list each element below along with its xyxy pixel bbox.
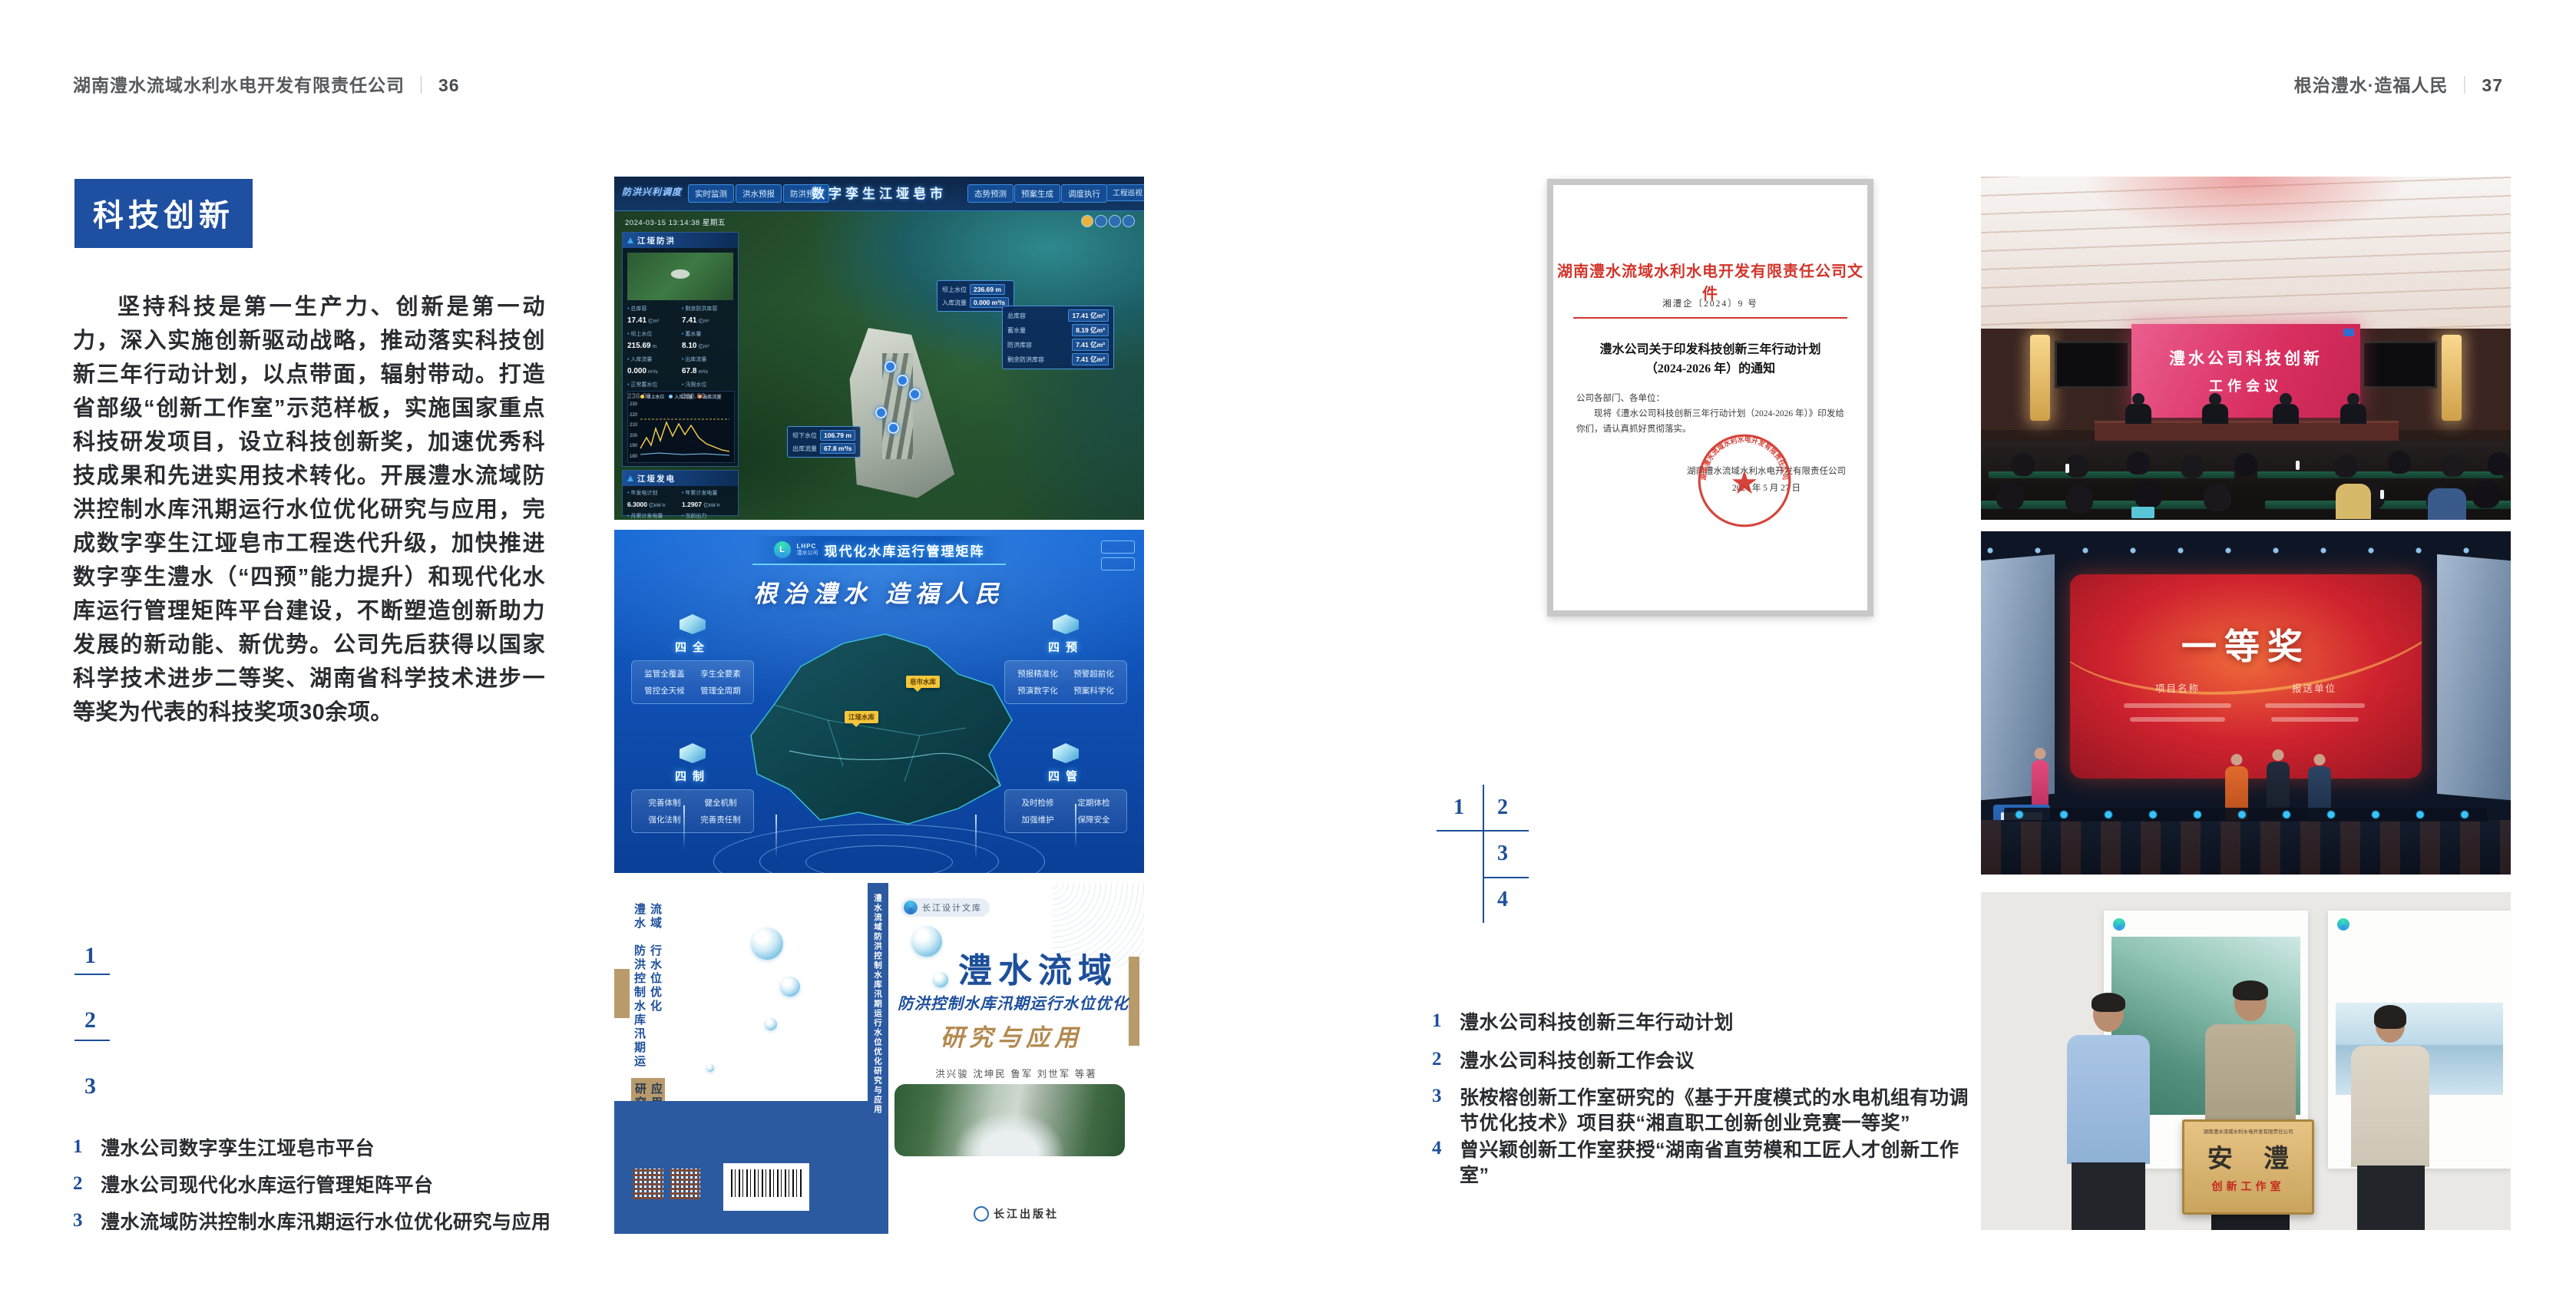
chart-plot: [628, 392, 734, 462]
gate-marker: [885, 361, 896, 372]
caption-text: 澧水公司科技创新三年行动计划: [1460, 1010, 1734, 1036]
section-title-badge: 科技创新: [74, 179, 253, 248]
qr-code: [670, 1169, 700, 1199]
company-seal: 湖南澧水流域水利水电开发有限责任公司 ★: [1696, 432, 1793, 529]
person-blue-polo: [2067, 1035, 2150, 1164]
red-rule: [1573, 317, 1847, 319]
figure-index-left-2: 2: [84, 1007, 96, 1033]
book-back-cover: 澧水流域 防洪控制水库汛期运行水位优化 研究与应用: [614, 883, 868, 1234]
panel-items: 监管全覆盖孪生全要素 管控全天候管理全周期: [631, 660, 754, 704]
cube-icon: [1053, 743, 1079, 763]
water-bottle: [2296, 461, 2300, 470]
locate-icon: [1109, 215, 1121, 227]
person-trousers: [2072, 1162, 2145, 1230]
light-pillar: [1075, 804, 1076, 848]
book-title-tail: 研究与应用: [941, 1018, 1083, 1053]
matrix-header: L LHPC 澧水公司 现代化水库运行管理矩阵: [752, 536, 1006, 565]
water-bubble: [911, 926, 942, 957]
cube-icon: [680, 614, 706, 634]
audience-member-yellow: [2336, 484, 2371, 519]
wall-display: [2055, 341, 2130, 388]
document-number: 湘澧企〔2024〕9 号: [1553, 297, 1867, 309]
screen-text-bar: [2271, 717, 2359, 722]
capacity-info-panel: 总库容17.41 亿m³ 蓄水量8.19 亿m³ 防洪库容7.41 亿m³ 剩余…: [1002, 306, 1114, 369]
flood-panel-title: 江垭防洪: [623, 233, 738, 248]
figure-official-document: 湖南澧水流域水利水电开发有限责任公司文件 湘澧企〔2024〕9 号 澧水公司关于…: [1547, 179, 1873, 617]
caption-left-1: 1 澧水公司数字孪生江垭皂市平台: [73, 1136, 580, 1162]
caption-left-3: 3 澧水流域防洪控制水库汛期运行水位优化研究与应用: [73, 1210, 580, 1235]
downstream-level-tag: 坝下水位106.79 m 出库流量67.8 m³/s: [787, 426, 861, 458]
caption-text: 澧水公司科技创新工作会议: [1460, 1049, 1695, 1074]
audience-member-blue: [2428, 488, 2466, 520]
water-bubble: [706, 1064, 714, 1072]
series-badge: 长江设计文库: [901, 898, 990, 917]
close-button-shape: [1101, 541, 1135, 554]
halo-ring: [805, 845, 953, 873]
screen-column-project: 项目名称: [2116, 680, 2239, 695]
tag-row: 出库流量67.8 m³/s: [792, 443, 855, 454]
screen-text-bar: [2265, 703, 2365, 708]
figure-index-hline: [1437, 830, 1529, 832]
salutation: 公司各部门、各单位：: [1576, 391, 1844, 406]
legend-button-shape: [1101, 557, 1135, 570]
screen-line-1: 澧水公司科技创新: [2169, 346, 2323, 369]
desk-row-green: [2265, 501, 2511, 509]
screen-text-bar: [2124, 703, 2231, 708]
reservoir-tag-jiangya: 江垭水库: [845, 711, 878, 723]
person-head: [2234, 984, 2267, 1021]
dam-illustration: [848, 328, 964, 498]
dashboard-datetime: 2024-03-15 13:14:38 星期五: [625, 217, 726, 227]
basin-map: 皂市水库 江垭水库: [728, 613, 1027, 843]
panel-siguan: 四管 及时检修定期体检 加强维护保障安全: [1004, 743, 1127, 833]
stage-light-fixtures: [2004, 808, 2488, 822]
led-screen: 一等奖 项目名称 报送单位: [2070, 574, 2422, 779]
tab-project-inspection: 工程巡视: [1106, 184, 1144, 201]
person-head: [2093, 997, 2124, 1032]
screen-text-bar: [2130, 717, 2225, 722]
header-separator: ｜: [412, 75, 431, 95]
info-row: 总库容17.41 亿m³: [1007, 309, 1109, 322]
book-spine: 澧水流域防洪控制水库汛期运行水位优化研究与应用: [868, 883, 888, 1234]
dam-thumbnail: [627, 253, 733, 300]
caption-number: 4: [1432, 1138, 1460, 1159]
speaker-silhouette: [2202, 404, 2228, 424]
book-title-sub: 防洪控制水库汛期运行水位优化: [898, 990, 1129, 1013]
caption-number: 2: [73, 1173, 101, 1195]
seal-star-icon: ★: [1730, 466, 1759, 501]
figure-innovation-meeting-photo: 澧水公司科技创新 工作会议: [1981, 177, 2511, 520]
light-pillar: [775, 815, 777, 859]
tissue-box: [2131, 507, 2154, 518]
caption-right-4: 4 曾兴颖创新工作室获授“湖南省直劳模和工匠人才创新工作室”: [1432, 1138, 1974, 1189]
magazine-spread: 湖南澧水流域水利水电开发有限责任公司｜36 根治澧水·造福人民｜37 科技创新 …: [0, 0, 2576, 1306]
gate-marker: [897, 375, 908, 386]
qr-code: [633, 1169, 663, 1199]
figure-index-hline-short: [1483, 877, 1529, 878]
figure-index-right-3: 3: [1497, 841, 1508, 866]
right-page-header: 根治澧水·造福人民｜37: [2294, 71, 2503, 97]
logo-text: LHPC 澧水公司: [797, 543, 818, 557]
matrix-slogan-calligraphy: 根治澧水 造福人民: [614, 574, 1144, 609]
legend-item: 出库流量: [698, 393, 722, 400]
info-row: 蓄水量8.19 亿m³: [1007, 324, 1109, 336]
gate-marker: [875, 407, 887, 418]
panel-items: 完善体制健全机制 强化法制完善责任制: [631, 789, 754, 833]
legend-item: 坝上水位: [640, 393, 664, 400]
left-page-header: 湖南澧水流域水利水电开发有限责任公司｜36: [73, 71, 460, 97]
panel-title: 四管: [1004, 768, 1127, 784]
stat: 坝上水位215.69m: [627, 330, 679, 352]
series-logo-icon: [904, 901, 918, 914]
meeting-ceiling: [1981, 177, 2511, 329]
layers-icon: [1095, 215, 1107, 227]
figure-index-right-4: 4: [1497, 888, 1508, 912]
reservoir-tag-zaoshi: 皂市水库: [906, 676, 940, 688]
panel-siquan: 四全 监管全覆盖孪生全要素 管控全天候管理全周期: [631, 614, 754, 704]
publisher-logo-icon: [974, 1206, 989, 1222]
info-row: 防洪库容7.41 亿m³: [1007, 339, 1109, 351]
caption-left-2: 2 澧水公司现代化水库运行管理矩阵平台: [73, 1173, 580, 1199]
figure-index-divider: [74, 974, 110, 975]
matrix-title: 现代化水库运行管理矩阵: [825, 541, 985, 560]
cube-icon: [680, 743, 706, 763]
audience-silhouettes-row: [2012, 453, 2035, 476]
page-number-left: 36: [438, 75, 460, 95]
figure-book-cover: 澧水流域 防洪控制水库汛期运行水位优化 研究与应用 澧水流域防洪控制水库汛期运行…: [614, 883, 1144, 1234]
dam-photo: [894, 1084, 1125, 1156]
speaker-silhouette: [2125, 404, 2151, 424]
caption-text: 澧水公司现代化水库运行管理矩阵平台: [101, 1173, 434, 1199]
tag-row: 坝上水位236.69 m: [942, 284, 1009, 295]
audience-silhouettes-row: [1996, 482, 2024, 510]
cube-icon: [1053, 614, 1079, 634]
meeting-screen: 澧水公司科技创新 工作会议: [2131, 324, 2360, 418]
panel-title: 四制: [631, 768, 754, 784]
info-row: 剩余防洪库容7.41 亿m³: [1007, 353, 1109, 365]
water-bubble: [751, 927, 783, 960]
figure-index-right-1: 1: [1453, 795, 1464, 820]
section-body-paragraph: 坚持科技是第一生产力、创新是第一动力，深入实施创新驱动战略，推动落实科技创新三年…: [73, 290, 545, 729]
tab-dispatch-execution: 调度执行: [1061, 184, 1107, 203]
caption-text: 张桉榕创新工作室研究的《基于开度模式的水电机组有功调节优化技术》项目获“湘直职工…: [1460, 1086, 1974, 1136]
publisher-name: 长江出版社: [994, 1206, 1059, 1222]
power-stats: 年发电计划6.3000亿kW·h 年累计发电量1.2907亿kW·h 月累计发电…: [627, 489, 733, 520]
panel-items: 预报精准化预警超前化 预演数字化预案科学化: [1004, 660, 1127, 704]
speaker-silhouette: [2340, 404, 2366, 424]
innovation-workshop-plaque: 湖南澧水流域水利水电开发有限责任公司 安 澧 创新工作室: [2182, 1119, 2314, 1215]
legend-item: 入库流量: [669, 393, 693, 400]
water-bubble: [780, 977, 800, 997]
stat: 入库流量0.000m³/s: [627, 355, 679, 377]
light-pillar: [683, 805, 685, 850]
chart-legend: 坝上水位 入库流量 出库流量: [628, 393, 734, 400]
book-front-cover: 长江设计文库 澧水流域 防洪控制水库汛期运行水位优化 研究与应用 洪兴骏 沈坤民…: [888, 883, 1144, 1234]
panel-title: 四全: [631, 639, 754, 655]
tab-plan-generation: 预案生成: [1014, 184, 1060, 203]
poster-logo-icon: [2113, 918, 2125, 931]
caption-number: 3: [1432, 1086, 1460, 1107]
user-icon: [1081, 215, 1093, 227]
panel-title: 四预: [1004, 639, 1127, 655]
stat: 当前出力0.00MW: [682, 512, 733, 520]
plaque-main-title: 安 澧: [2184, 1138, 2312, 1175]
book-title-main: 澧水流域: [958, 943, 1118, 992]
speaker-silhouette: [2273, 404, 2299, 424]
settings-icon: [1123, 215, 1135, 227]
document-page: 湖南澧水流域水利水电开发有限责任公司文件 湘澧企〔2024〕9 号 澧水公司关于…: [1553, 185, 1867, 610]
gate-marker: [888, 422, 899, 434]
flood-stats: 总库容17.41亿m³ 剩余防洪库容7.41亿m³ 坝上水位215.69m 蓄水…: [627, 305, 733, 402]
wall-light: [2030, 335, 2050, 421]
dashboard-title: 数字孪生江垭皂市: [787, 178, 971, 206]
caption-number: 1: [1432, 1010, 1460, 1032]
caption-right-1: 1 澧水公司科技创新三年行动计划: [1432, 1010, 1974, 1036]
back-cover-vertical-title: 澧水流域 防洪控制水库汛期运行水位优化 研究与应用: [631, 903, 665, 1133]
person-trousers: [2357, 1165, 2425, 1230]
person-beige-top: [2351, 1046, 2429, 1167]
poster-logo-icon: [2337, 918, 2349, 931]
panel-items: 及时检修定期体检 加强维护保障安全: [1004, 789, 1127, 833]
plaque-header: 湖南澧水流域水利水电开发有限责任公司: [2184, 1127, 2312, 1135]
caption-number: 2: [1432, 1049, 1460, 1070]
stat: 剩余防洪库容7.41亿m³: [682, 305, 733, 326]
wall-display: [2362, 341, 2437, 388]
lhpc-logo-icon: L: [774, 541, 791, 558]
tan-accent-block: [614, 969, 630, 1018]
stat: 蓄水量8.10亿m³: [682, 330, 733, 352]
wall-light: [2442, 335, 2462, 421]
stage-truss-lights: [1981, 537, 2511, 564]
water-bottle: [2380, 490, 2384, 499]
gate-marker: [909, 388, 921, 400]
screen-logo-icon: [2343, 329, 2354, 336]
tab-realtime-monitor: 实时监测: [688, 184, 734, 203]
tab-flood-forecast: 洪水预报: [736, 184, 782, 203]
stat: 总库容17.41亿m³: [627, 305, 679, 326]
figure-workshop-plaque-photo: 湖南澧水流域水利水电开发有限责任公司 安 澧 创新工作室: [1981, 892, 2511, 1230]
stat: 年累计发电量1.2907亿kW·h: [682, 489, 733, 511]
caption-text: 曾兴颖创新工作室获授“湖南省直劳模和工匠人才创新工作室”: [1460, 1138, 1974, 1189]
book-authors: 洪兴骏 沈坤民 鲁军 刘世军 等著: [888, 1066, 1144, 1080]
screen-line-2: 工作会议: [2209, 375, 2283, 395]
water-level-chart: 坝上水位 入库流量 出库流量 230220210200190180: [627, 391, 735, 463]
caption-number: 1: [73, 1136, 101, 1158]
caption-number: 3: [73, 1210, 101, 1232]
tab-situation-forecast: 态势预测: [967, 184, 1014, 203]
stage-side-panel: [2437, 554, 2511, 800]
figure-index-left-3: 3: [84, 1073, 96, 1099]
flood-panel: 江垭防洪 总库容17.41亿m³ 剩余防洪库容7.41亿m³ 坝上水位215.6…: [622, 232, 739, 467]
figure-digital-twin-dashboard: 防洪兴利调度 实时监测 洪水预报 防洪预警 数字孪生江垭皂市 态势预测 预案生成…: [614, 177, 1144, 520]
chart-y-ticks: 230220210200190180: [630, 402, 637, 459]
caption-text: 澧水流域防洪控制水库汛期运行水位优化研究与应用: [101, 1210, 551, 1235]
figure-index-divider: [74, 1040, 110, 1041]
slogan: 根治澧水·造福人民: [2294, 75, 2449, 95]
page-number-right: 37: [2482, 75, 2503, 95]
water-bubble: [765, 1018, 777, 1030]
water-bubble: [933, 972, 948, 987]
caption-text: 澧水公司数字孪生江垭皂市平台: [101, 1136, 375, 1162]
figure-index-right-2: 2: [1497, 795, 1508, 820]
document-title: 澧水公司关于印发科技创新三年行动计划 （2024-2026 年）的通知: [1553, 340, 1867, 379]
screen-column-unit: 报送单位: [2253, 680, 2376, 695]
light-pillar: [975, 815, 977, 859]
header-separator: ｜: [2455, 75, 2474, 95]
audience-area: [1981, 441, 2511, 520]
figure-award-ceremony-photo: 一等奖 项目名称 报送单位: [1981, 531, 2511, 875]
stage-floor: [1981, 820, 2511, 875]
figure-reservoir-matrix-platform: L LHPC 澧水公司 现代化水库运行管理矩阵 根治澧水 造福人民 皂市水库: [614, 530, 1144, 873]
panel-sizhi: 四制 完善体制健全机制 强化法制完善责任制: [631, 743, 754, 833]
water-bottle: [2065, 464, 2069, 473]
panel-siyu: 四预 预报精准化预警超前化 预演数字化预案科学化: [1004, 614, 1127, 704]
series-name: 长江设计文库: [922, 901, 982, 914]
desk-row-green: [2257, 471, 2503, 478]
document-body: 公司各部门、各单位： 现将《澧水公司科技创新三年行动计划（2024-2026 年…: [1576, 391, 1844, 437]
plaque-subtitle: 创新工作室: [2184, 1179, 2312, 1194]
figure-index-vline: [1483, 785, 1484, 923]
stat: 月累计发电量3359.21万kW·h: [627, 512, 679, 520]
company-name: 湖南澧水流域水利水电开发有限责任公司: [73, 75, 405, 95]
award-title: 一等奖: [2070, 619, 2422, 670]
spine-title: 澧水流域防洪控制水库汛期运行水位优化研究与应用: [872, 894, 884, 1115]
dashboard-corner-label: 防洪兴利调度: [622, 185, 682, 198]
tag-row: 坝下水位106.79 m: [792, 430, 855, 441]
barcode: [723, 1163, 809, 1211]
caption-right-3: 3 张桉榕创新工作室研究的《基于开度模式的水电机组有功调节优化技术》项目获“湘直…: [1432, 1086, 1974, 1136]
stat: 年发电计划6.3000亿kW·h: [627, 489, 679, 511]
figure-index-left-1: 1: [84, 943, 96, 969]
caption-right-2: 2 澧水公司科技创新工作会议: [1432, 1049, 1974, 1074]
tan-accent-bar: [1129, 957, 1139, 1046]
person-head: [2376, 1009, 2405, 1043]
publisher-mark: 长江出版社: [888, 1206, 1144, 1222]
rostrum-desk: [2095, 421, 2399, 443]
power-panel: 江垭发电 年发电计划6.3000亿kW·h 年累计发电量1.2907亿kW·h …: [622, 470, 739, 516]
stat: 出库流量67.8m³/s: [682, 355, 733, 377]
tag-row: 入库流量0.000 m³/s: [942, 297, 1009, 308]
power-panel-title: 江垭发电: [623, 471, 738, 486]
